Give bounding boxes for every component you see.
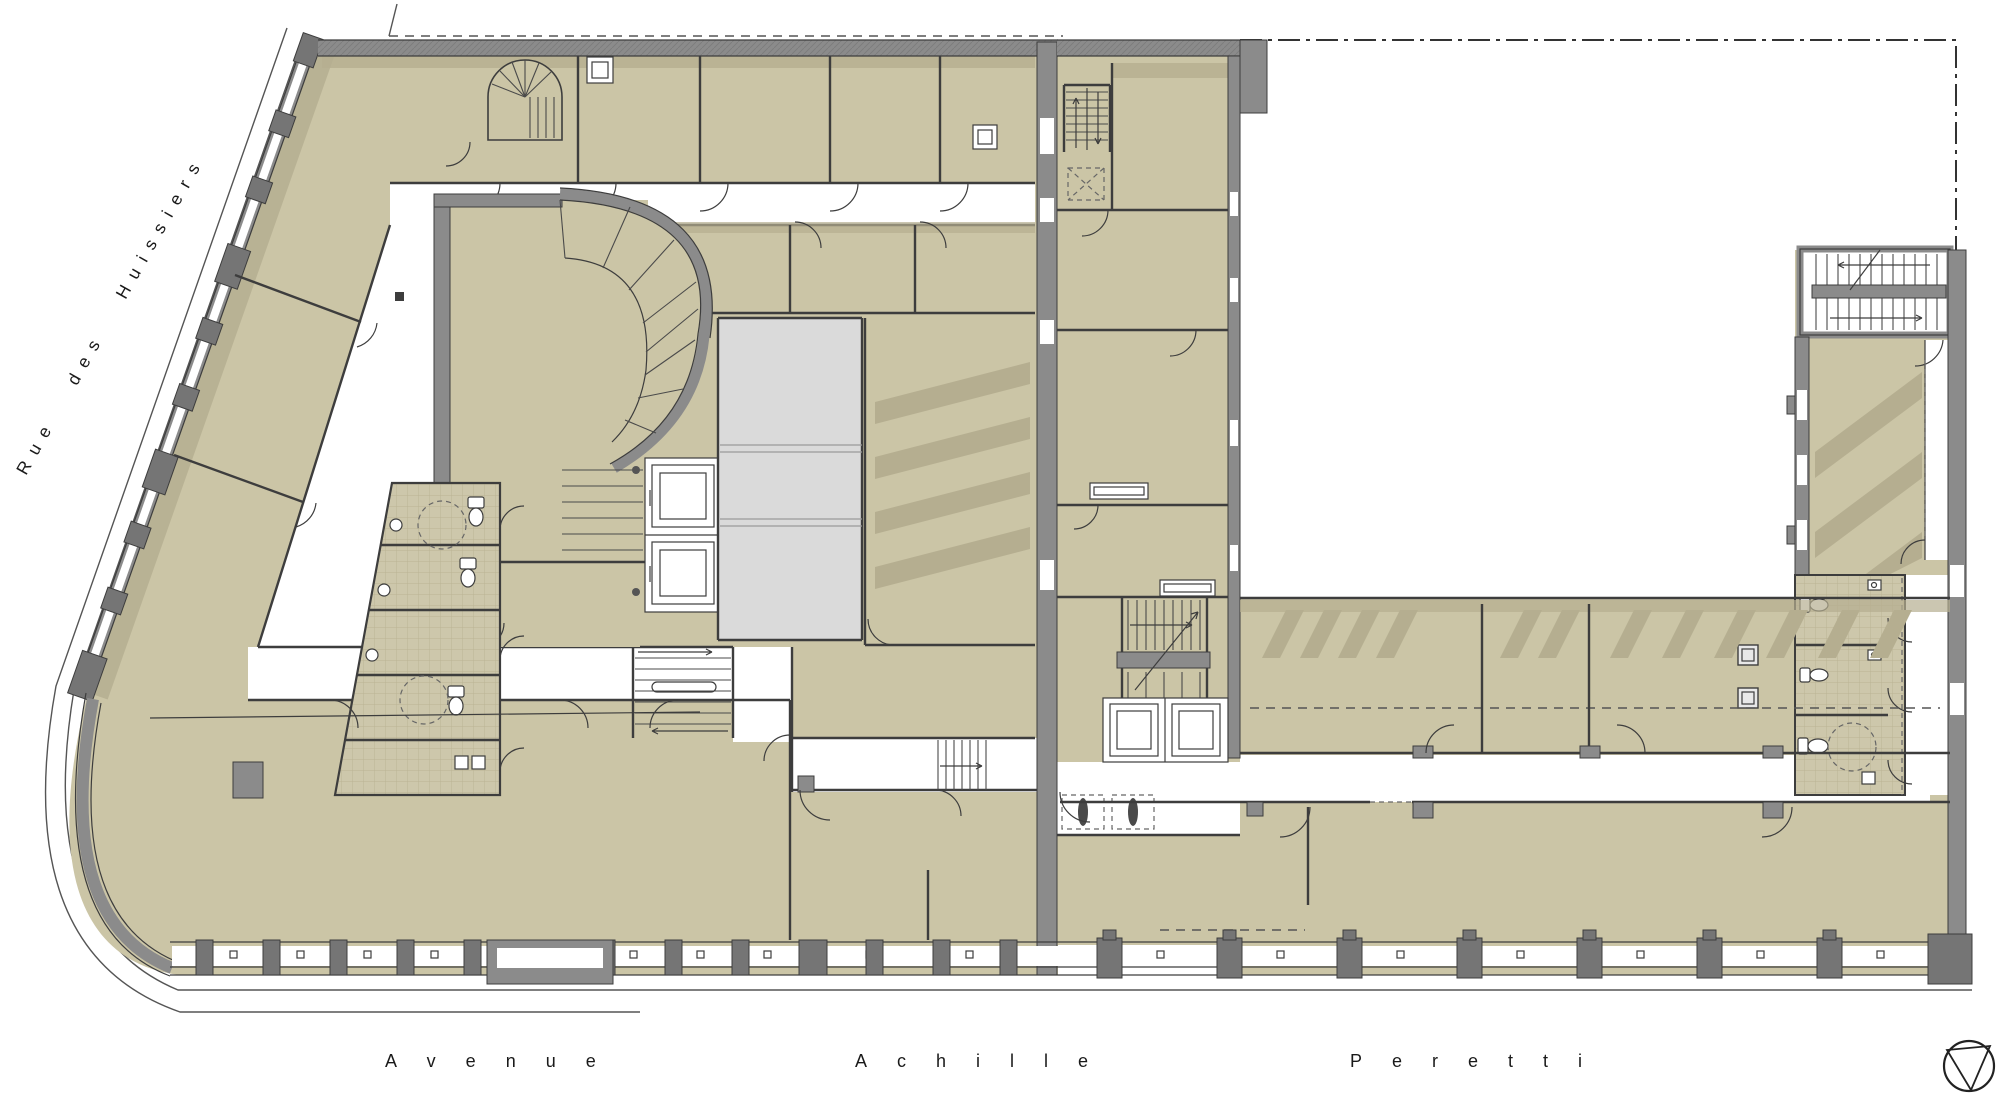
floor-plan: Rue des Huissiers Avenue Achille Peretti <box>0 0 2000 1095</box>
elevator-icon <box>1172 704 1220 756</box>
elevator-bank-right <box>1103 698 1228 762</box>
elevator-icon <box>1110 704 1158 756</box>
sink-icon <box>366 649 378 661</box>
east-facade <box>1948 250 1966 975</box>
north-arrow-compass <box>1944 1041 1994 1091</box>
party-wall <box>1037 42 1057 975</box>
elevator-icon <box>650 542 714 604</box>
atrium-void <box>718 318 862 640</box>
north-facade <box>318 40 1058 56</box>
wc-icon <box>448 686 464 715</box>
wc-icon <box>1800 668 1828 682</box>
street-label-bottom-word3: Peretti <box>1350 1051 1612 1071</box>
wc-icon <box>1798 738 1828 754</box>
entrance-porch <box>487 940 613 984</box>
sink-icon <box>378 584 390 596</box>
middle-east-wall <box>1228 56 1240 758</box>
wc-icon <box>460 558 476 587</box>
street-label-bottom-word2: Achille <box>855 1051 1118 1071</box>
street-label-bottom-word1: Avenue <box>385 1051 626 1071</box>
sink-icon <box>390 519 402 531</box>
wc-icon <box>468 497 484 526</box>
urinal-icon <box>455 756 468 769</box>
elevator-bank-left <box>632 458 722 612</box>
floor-plan-drawing: Rue des Huissiers Avenue Achille Peretti <box>0 0 2000 1095</box>
elevator-icon <box>650 465 714 527</box>
urinal-icon <box>472 756 485 769</box>
